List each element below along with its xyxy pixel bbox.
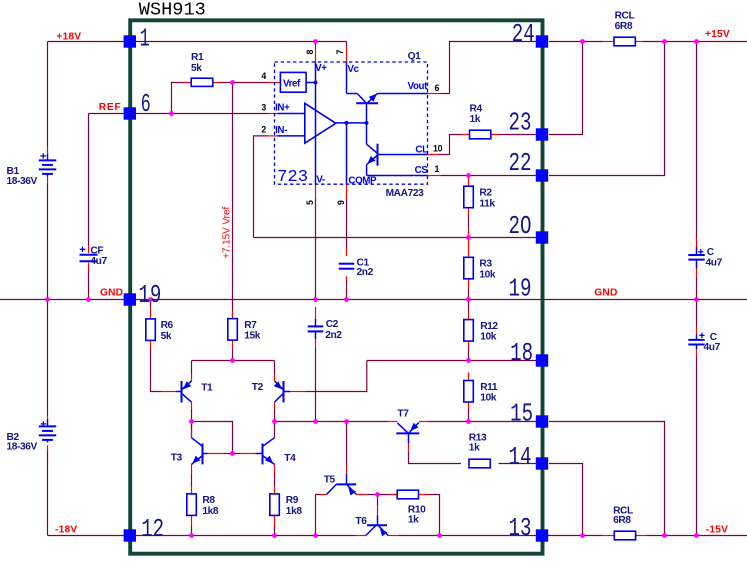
- svg-text:19: 19: [138, 280, 161, 310]
- svg-text:R1: R1: [191, 52, 204, 63]
- svg-text:10k: 10k: [479, 269, 496, 280]
- svg-text:1k: 1k: [408, 515, 419, 526]
- svg-text:GND: GND: [594, 288, 617, 299]
- svg-text:22: 22: [509, 148, 532, 178]
- svg-text:CL: CL: [415, 145, 428, 156]
- svg-text:T1: T1: [201, 382, 213, 393]
- svg-text:1k: 1k: [470, 114, 481, 125]
- svg-text:WSH913: WSH913: [139, 1, 206, 21]
- svg-text:10: 10: [433, 144, 443, 154]
- svg-text:R9: R9: [286, 495, 299, 506]
- svg-text:V+: V+: [315, 63, 327, 74]
- svg-text:10k: 10k: [480, 393, 497, 404]
- svg-text:R3: R3: [479, 259, 492, 270]
- svg-text:6: 6: [141, 89, 151, 119]
- svg-text:R12: R12: [480, 321, 498, 332]
- svg-text:2n2: 2n2: [325, 330, 342, 341]
- svg-text:+18V: +18V: [56, 32, 81, 43]
- svg-text:CF: CF: [90, 245, 103, 256]
- svg-text:REF: REF: [99, 102, 122, 113]
- svg-text:T3: T3: [171, 452, 183, 463]
- svg-text:15k: 15k: [244, 331, 261, 342]
- svg-text:12: 12: [141, 514, 164, 544]
- svg-text:T6: T6: [355, 516, 367, 527]
- svg-text:COMP: COMP: [348, 176, 377, 187]
- svg-text:R2: R2: [479, 188, 492, 199]
- svg-text:-18V: -18V: [55, 525, 77, 536]
- svg-text:11k: 11k: [479, 198, 495, 209]
- svg-text:-15V: -15V: [706, 525, 728, 536]
- svg-text:Vc: Vc: [347, 64, 359, 75]
- svg-text:15: 15: [510, 398, 533, 428]
- svg-text:7: 7: [335, 49, 345, 54]
- svg-text:1k8: 1k8: [202, 506, 219, 517]
- svg-text:C2: C2: [326, 319, 339, 330]
- svg-text:MAA723: MAA723: [386, 188, 425, 199]
- svg-text:2: 2: [261, 125, 266, 135]
- svg-text:+15V: +15V: [705, 29, 730, 40]
- svg-text:R4: R4: [470, 103, 483, 114]
- svg-text:6: 6: [435, 83, 440, 93]
- svg-text:R6: R6: [161, 320, 174, 331]
- svg-text:18-36V: 18-36V: [7, 176, 38, 187]
- svg-text:R8: R8: [202, 495, 215, 506]
- svg-text:4u7: 4u7: [90, 256, 107, 267]
- svg-text:Vref: Vref: [283, 78, 301, 89]
- svg-text:19: 19: [509, 274, 532, 304]
- svg-text:5: 5: [305, 200, 315, 205]
- svg-text:10k: 10k: [480, 332, 497, 343]
- svg-text:IN-: IN-: [275, 125, 287, 136]
- svg-text:RCL: RCL: [615, 10, 635, 21]
- svg-text:1k8: 1k8: [286, 506, 303, 517]
- svg-text:1: 1: [435, 164, 440, 174]
- svg-text:R7: R7: [244, 320, 257, 331]
- svg-text:6R8: 6R8: [615, 21, 633, 32]
- svg-text:18: 18: [510, 338, 533, 368]
- svg-text:723: 723: [277, 167, 308, 186]
- svg-text:GND: GND: [100, 288, 123, 299]
- svg-text:+7.15V Vref: +7.15V Vref: [222, 207, 233, 259]
- svg-text:CS: CS: [415, 165, 429, 176]
- svg-text:5k: 5k: [161, 331, 172, 342]
- svg-text:24: 24: [512, 19, 535, 49]
- svg-text:R11: R11: [480, 382, 498, 393]
- svg-text:T4: T4: [284, 453, 296, 464]
- svg-text:4u7: 4u7: [706, 258, 723, 269]
- svg-text:4: 4: [261, 71, 266, 81]
- svg-text:2n2: 2n2: [357, 267, 374, 278]
- svg-text:1: 1: [140, 24, 150, 54]
- svg-text:Vout: Vout: [408, 81, 429, 92]
- svg-text:18-36V: 18-36V: [7, 442, 38, 453]
- svg-text:T7: T7: [397, 409, 409, 420]
- svg-text:9: 9: [336, 200, 346, 205]
- svg-text:T5: T5: [324, 475, 336, 486]
- svg-text:2O: 2O: [509, 211, 532, 241]
- svg-text:T2: T2: [252, 382, 264, 393]
- svg-text:Q1: Q1: [408, 51, 422, 62]
- svg-text:23: 23: [509, 108, 532, 138]
- svg-text:4u7: 4u7: [704, 342, 721, 353]
- svg-text:IN+: IN+: [275, 103, 290, 114]
- svg-text:13: 13: [509, 513, 532, 543]
- svg-text:3: 3: [261, 103, 266, 113]
- svg-text:14: 14: [509, 442, 532, 472]
- svg-text:5k: 5k: [191, 63, 202, 74]
- svg-text:C: C: [707, 247, 715, 258]
- svg-text:6R8: 6R8: [613, 515, 631, 526]
- svg-text:V-: V-: [316, 175, 325, 186]
- svg-text:1k: 1k: [469, 443, 480, 454]
- svg-text:8: 8: [305, 49, 315, 54]
